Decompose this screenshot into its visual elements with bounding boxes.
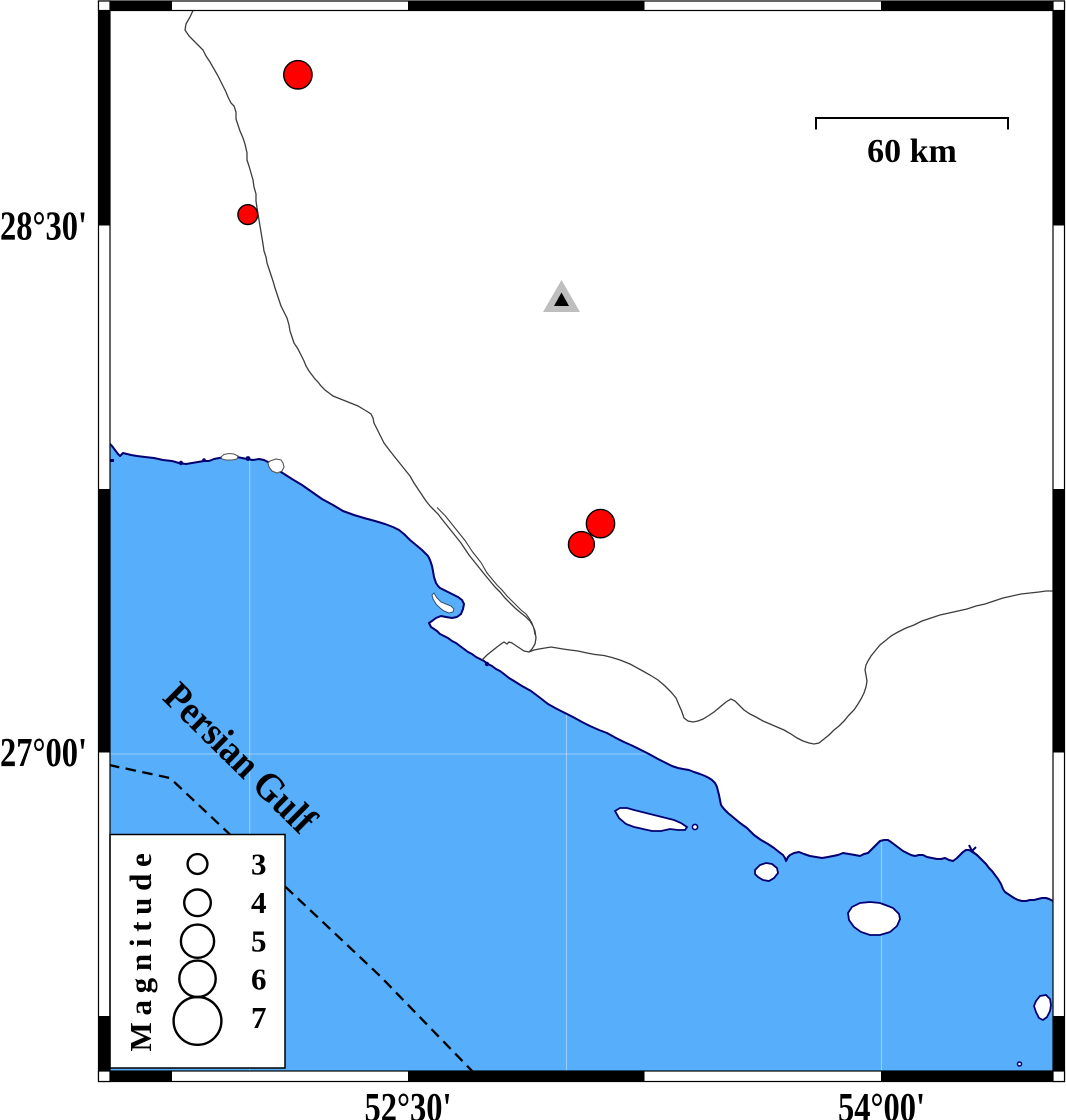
svg-text:Magnitude: Magnitude bbox=[123, 847, 158, 1052]
svg-text:28°30': 28°30' bbox=[0, 203, 87, 249]
svg-text:5: 5 bbox=[251, 924, 267, 959]
svg-text:4: 4 bbox=[251, 885, 267, 920]
svg-text:7: 7 bbox=[251, 1000, 267, 1035]
svg-text:27°00': 27°00' bbox=[0, 729, 87, 775]
svg-text:60 km: 60 km bbox=[867, 133, 957, 170]
svg-text:54°00': 54°00' bbox=[838, 1084, 925, 1120]
svg-text:6: 6 bbox=[251, 962, 267, 997]
svg-text:52°30': 52°30' bbox=[365, 1084, 452, 1120]
svg-text:3: 3 bbox=[251, 847, 267, 882]
